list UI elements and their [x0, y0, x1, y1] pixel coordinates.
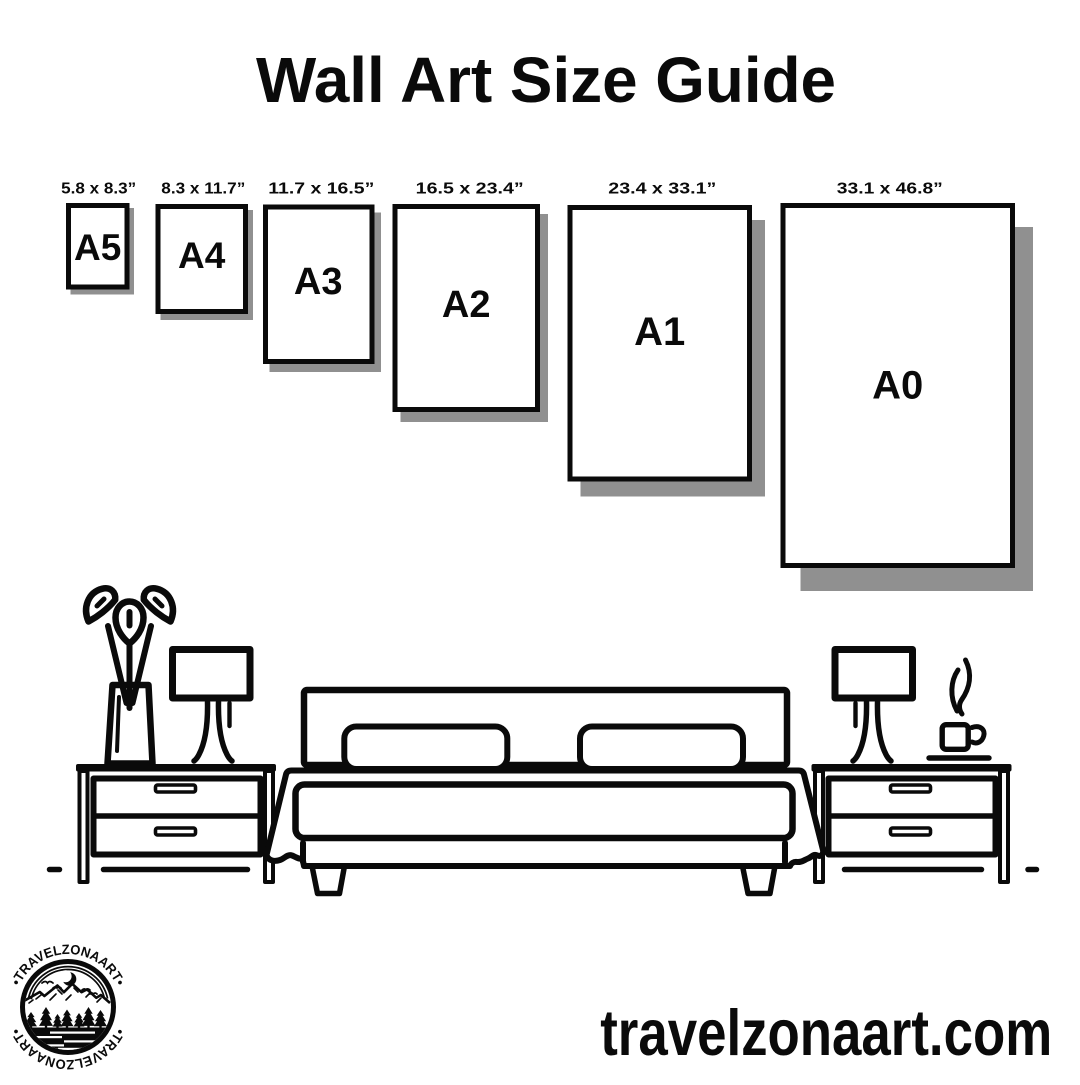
svg-text:33.1 x 46.8”: 33.1 x 46.8” — [837, 181, 943, 198]
svg-text:8.3 x 11.7”: 8.3 x 11.7” — [161, 181, 245, 198]
svg-text:A2: A2 — [442, 284, 491, 326]
svg-text:A3: A3 — [294, 261, 343, 303]
svg-text:A0: A0 — [872, 364, 923, 408]
svg-text:A5: A5 — [74, 227, 121, 268]
svg-text:A4: A4 — [178, 235, 226, 276]
svg-text:11.7 x 16.5”: 11.7 x 16.5” — [268, 181, 374, 198]
svg-text:A1: A1 — [634, 310, 685, 354]
svg-text:Wall Art Size Guide: Wall Art Size Guide — [256, 44, 836, 116]
svg-text:23.4 x 33.1”: 23.4 x 33.1” — [608, 181, 716, 198]
svg-text:travelzonaart.com: travelzonaart.com — [600, 996, 1052, 1069]
svg-text:16.5 x 23.4”: 16.5 x 23.4” — [416, 181, 524, 198]
svg-text:5.8 x 8.3”: 5.8 x 8.3” — [61, 181, 136, 198]
